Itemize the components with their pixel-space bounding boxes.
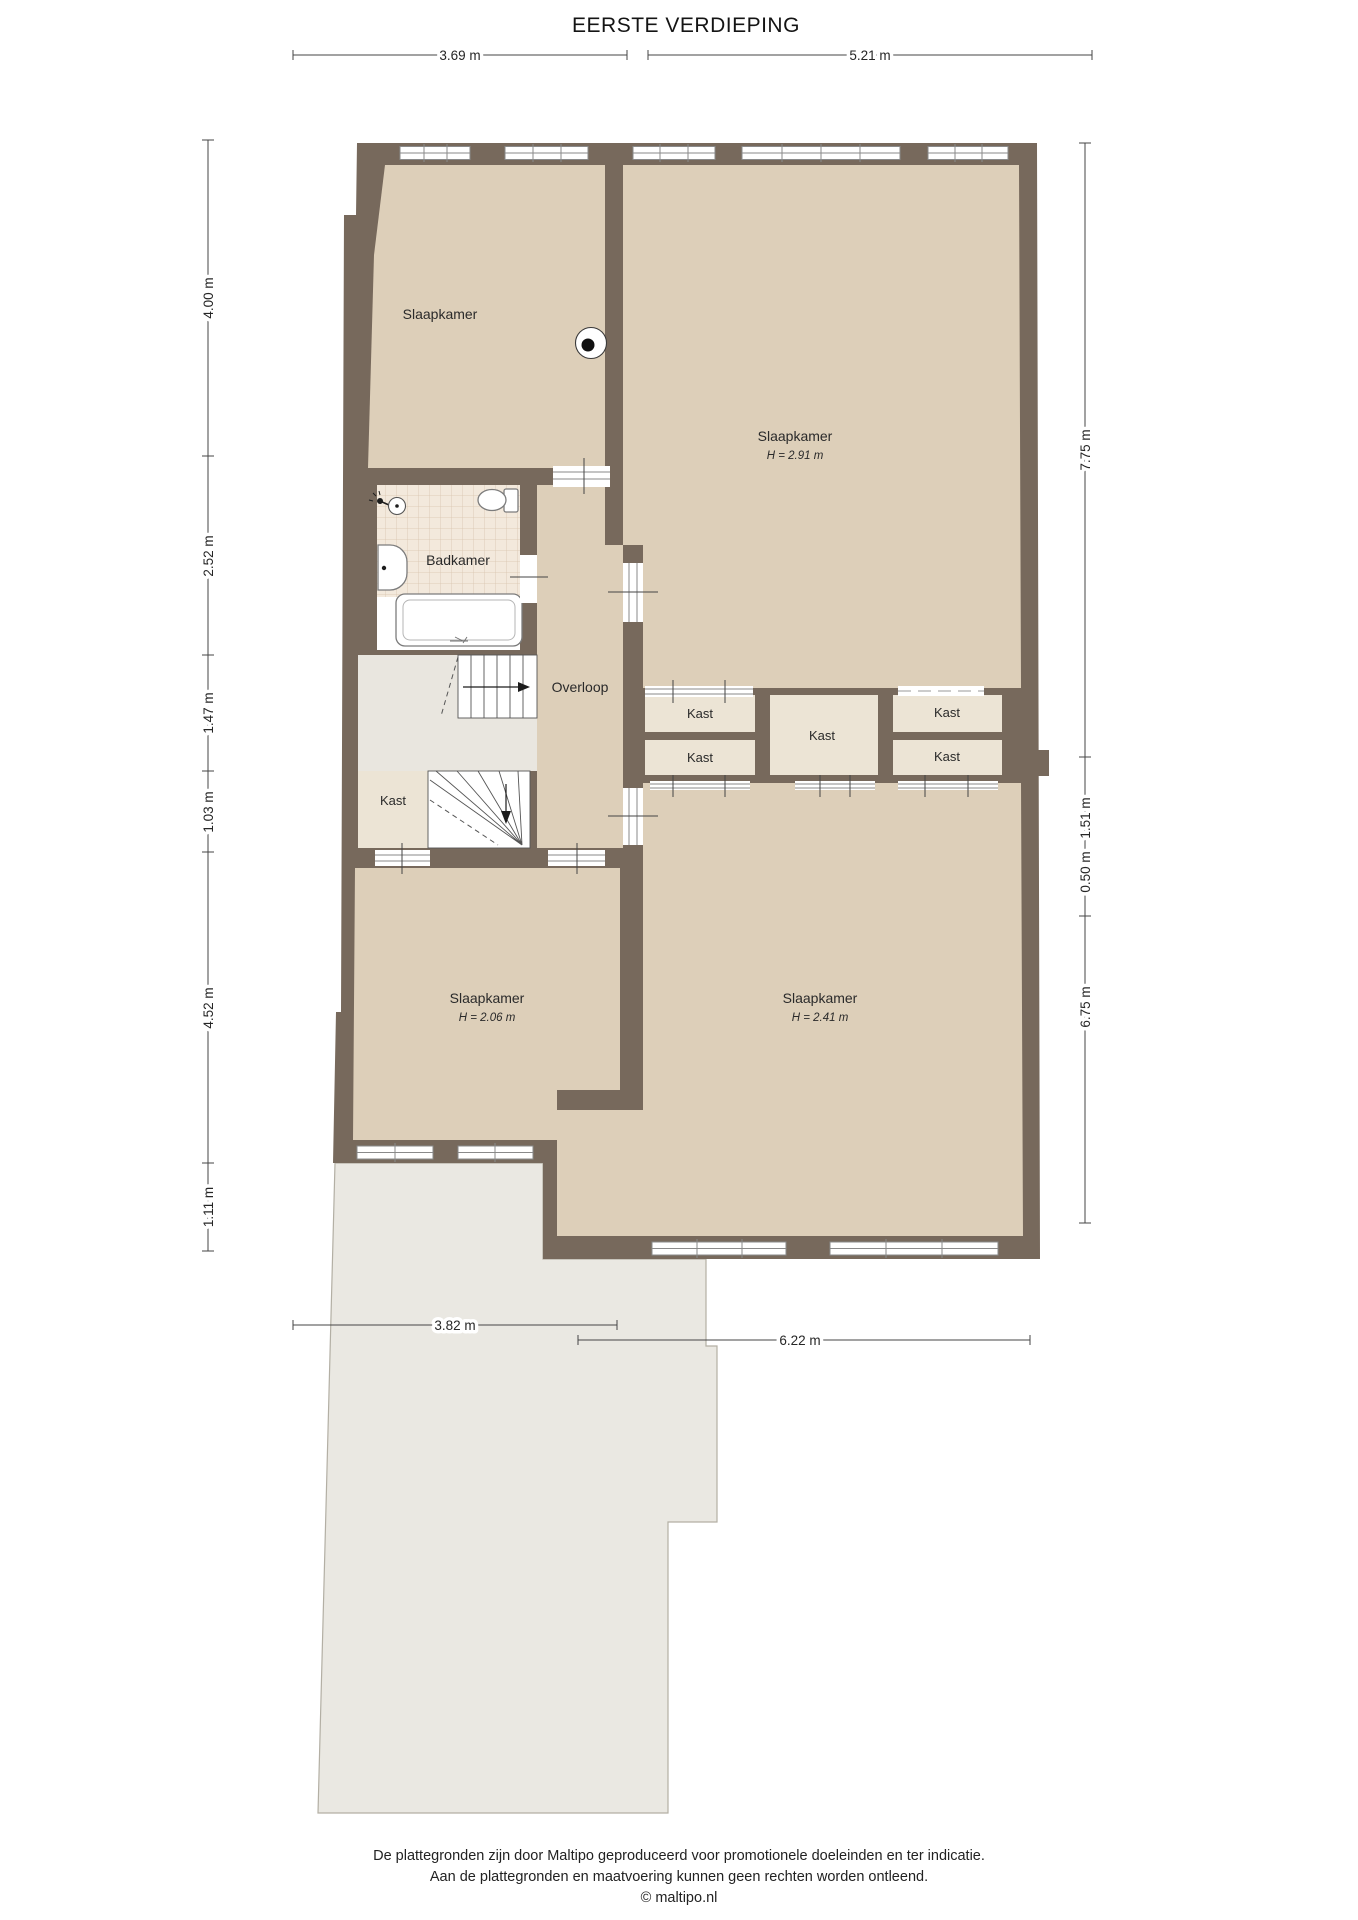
dim-left-5: 4.52 m: [201, 987, 216, 1028]
floorplan-page: EERSTE VERDIEPING: [0, 0, 1358, 1920]
label-bedroom-bottomleft-height: H = 2.06 m: [459, 1012, 516, 1024]
toilet: [478, 489, 518, 512]
dim-left-4: 1.03 m: [201, 791, 216, 832]
room-bedroom-topright: [623, 165, 1021, 688]
dimension-top: 3.69 m 5.21 m: [293, 48, 1092, 63]
bathtub: [396, 594, 522, 646]
label-closet-5: Kast: [934, 749, 960, 764]
label-bedroom-topright: Slaapkamer: [758, 428, 833, 444]
dim-right-1: 7.75 m: [1078, 429, 1093, 470]
label-bedroom-bottomleft: Slaapkamer: [450, 990, 525, 1006]
dim-left-2: 2.52 m: [201, 535, 216, 576]
dim-left-3: 1.47 m: [201, 692, 216, 733]
dim-bottom-1: 3.82 m: [434, 1318, 475, 1333]
dim-bottom-2: 6.22 m: [779, 1333, 820, 1348]
label-bedroom-bottomright: Slaapkamer: [783, 990, 858, 1006]
stairs-up: [358, 655, 537, 771]
label-closet-1: Kast: [687, 706, 713, 721]
label-bedroom-bottomright-height: H = 2.41 m: [792, 1012, 849, 1024]
footer-line-2: Aan de plattegronden en maatvoering kunn…: [430, 1869, 928, 1885]
footer-line-3: © maltipo.nl: [641, 1890, 718, 1906]
label-bathroom: Badkamer: [426, 552, 490, 568]
label-closet-2: Kast: [687, 750, 713, 765]
washbasin: [378, 545, 407, 590]
dim-top-1: 3.69 m: [439, 48, 480, 63]
dimension-right: 7.75 m 1.51 m 0.50 m 6.75 m: [1078, 143, 1093, 1223]
dim-right-4: 6.75 m: [1078, 986, 1093, 1027]
stairs-down: [358, 771, 530, 848]
dim-top-2: 5.21 m: [849, 48, 890, 63]
page-title: EERSTE VERDIEPING: [572, 14, 800, 37]
floorplan-svg: EERSTE VERDIEPING: [0, 0, 1358, 1920]
dim-right-2: 1.51 m: [1078, 797, 1093, 838]
dim-left-6: 1.11 m: [201, 1187, 216, 1227]
footer-line-1: De plattegronden zijn door Maltipo gepro…: [373, 1848, 985, 1864]
label-bedroom-topright-height: H = 2.91 m: [767, 450, 824, 462]
label-closet-by-stairs: Kast: [380, 793, 406, 808]
label-overloop: Overloop: [552, 679, 609, 695]
dim-right-3: 0.50 m: [1078, 851, 1093, 892]
dim-left-1: 4.00 m: [201, 277, 216, 318]
right-wall-nub: [1037, 750, 1049, 776]
label-closet-3: Kast: [809, 728, 835, 743]
label-bedroom-topleft: Slaapkamer: [403, 306, 478, 322]
roof-terrace-outline: [318, 1163, 717, 1813]
dimension-left: 4.00 m 2.52 m 1.47 m 1.03 m 4.52 m 1.11 …: [201, 140, 216, 1251]
label-closet-4: Kast: [934, 705, 960, 720]
bedroom-sink: [576, 328, 607, 359]
